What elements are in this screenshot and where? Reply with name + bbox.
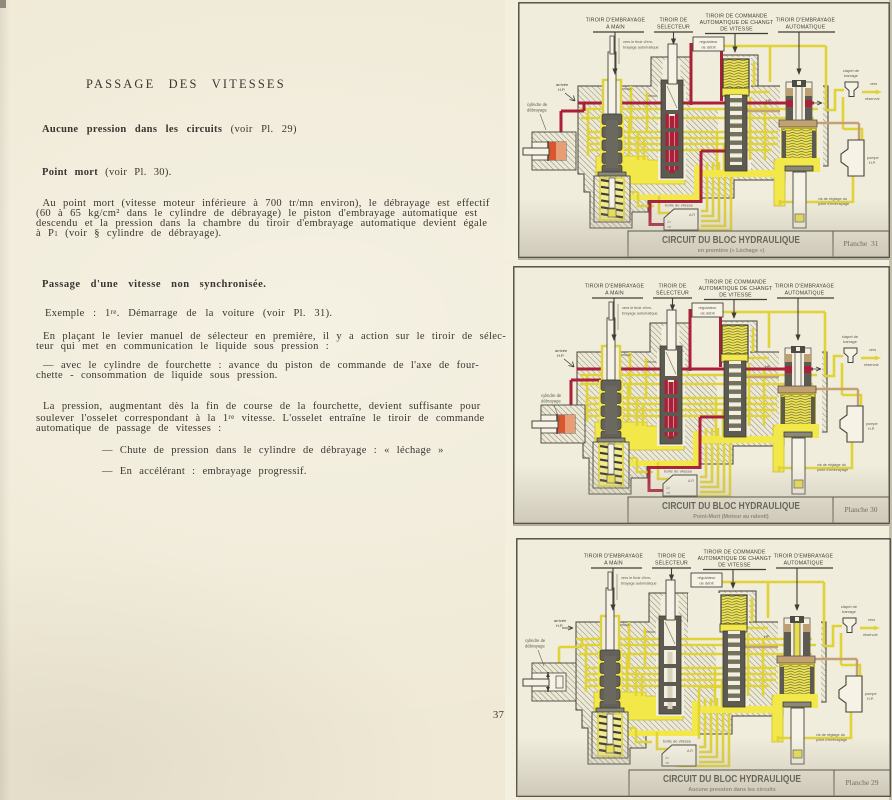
svg-text:H.P.: H.P. bbox=[556, 623, 563, 628]
svg-text:de débit: de débit bbox=[700, 311, 715, 316]
svg-text:AUTOMATIQUE: AUTOMATIQUE bbox=[786, 25, 826, 31]
svg-text:SÉLECTEUR: SÉLECTEUR bbox=[656, 290, 689, 297]
svg-text:H.P.: H.P. bbox=[869, 161, 876, 165]
svg-text:débrayage: débrayage bbox=[525, 644, 545, 649]
svg-text:brayage automatique: brayage automatique bbox=[621, 582, 657, 586]
svg-text:débrayage: débrayage bbox=[527, 108, 547, 113]
svg-text:TIROIR D'EMBRAYAGE: TIROIR D'EMBRAYAGE bbox=[584, 554, 644, 560]
svg-text:cylindre de: cylindre de bbox=[525, 638, 546, 643]
svg-text:vers le tiroir d'em-: vers le tiroir d'em- bbox=[622, 306, 653, 310]
svg-text:vers: vers bbox=[868, 618, 875, 622]
svg-text:H.P.: H.P. bbox=[867, 697, 874, 701]
svg-text:TIROIR D'EMBRAYAGE: TIROIR D'EMBRAYAGE bbox=[776, 18, 836, 24]
svg-text:AUTOMATIQUE: AUTOMATIQUE bbox=[785, 291, 825, 297]
svg-text:barrage: barrage bbox=[842, 609, 857, 614]
svg-text:retour: retour bbox=[646, 630, 656, 634]
svg-text:régulateur: régulateur bbox=[698, 305, 717, 310]
svg-text:de débit: de débit bbox=[701, 45, 716, 50]
svg-text:réservoir: réservoir bbox=[865, 97, 881, 101]
svg-text:DE VITESSE: DE VITESSE bbox=[720, 27, 753, 33]
svg-text:pompe: pompe bbox=[865, 692, 877, 696]
svg-text:HP: HP bbox=[765, 365, 771, 369]
svg-text:réservoir: réservoir bbox=[864, 363, 880, 367]
svg-text:TIROIR DE COMMANDE: TIROIR DE COMMANDE bbox=[705, 14, 767, 20]
svg-text:vers: vers bbox=[870, 82, 877, 86]
svg-text:vers le tiroir d'em-: vers le tiroir d'em- bbox=[623, 40, 654, 44]
svg-text:H.P.: H.P. bbox=[557, 353, 564, 358]
svg-text:barrage: barrage bbox=[844, 73, 859, 78]
svg-text:régulateur: régulateur bbox=[699, 39, 718, 44]
svg-text:SÉLECTEUR: SÉLECTEUR bbox=[655, 560, 688, 567]
svg-text:A MAIN: A MAIN bbox=[604, 561, 623, 567]
svg-text:réservoir: réservoir bbox=[863, 633, 879, 637]
svg-text:TIROIR D'EMBRAYAGE: TIROIR D'EMBRAYAGE bbox=[774, 554, 834, 560]
svg-text:cylindre de: cylindre de bbox=[541, 393, 562, 398]
svg-text:TIROIR DE: TIROIR DE bbox=[657, 554, 685, 560]
svg-text:retour: retour bbox=[622, 87, 632, 91]
svg-text:vis de réglage du: vis de réglage du bbox=[816, 733, 845, 737]
svg-text:DE VITESSE: DE VITESSE bbox=[718, 563, 751, 569]
svg-text:H.P.: H.P. bbox=[868, 427, 875, 431]
svg-text:TIROIR DE: TIROIR DE bbox=[658, 284, 686, 290]
svg-text:SÉLECTEUR: SÉLECTEUR bbox=[657, 24, 690, 31]
svg-text:TIROIR D'EMBRAYAGE: TIROIR D'EMBRAYAGE bbox=[775, 284, 835, 290]
svg-text:régulateur: régulateur bbox=[697, 575, 716, 580]
svg-text:TIROIR DE COMMANDE: TIROIR DE COMMANDE bbox=[704, 280, 766, 286]
svg-text:pompe: pompe bbox=[867, 156, 879, 160]
svg-text:retour: retour bbox=[620, 623, 630, 627]
svg-text:AUTOMATIQUE DE CHANGT: AUTOMATIQUE DE CHANGT bbox=[699, 286, 773, 292]
svg-text:retour: retour bbox=[621, 353, 631, 357]
svg-text:AUTOMATIQUE: AUTOMATIQUE bbox=[784, 561, 824, 567]
svg-text:AUTOMATIQUE DE CHANGT: AUTOMATIQUE DE CHANGT bbox=[698, 556, 772, 562]
svg-text:A MAIN: A MAIN bbox=[606, 25, 625, 31]
svg-text:brayage automatique: brayage automatique bbox=[622, 312, 658, 316]
svg-text:retour: retour bbox=[648, 94, 658, 98]
svg-text:cylindre de: cylindre de bbox=[527, 102, 548, 107]
svg-text:barrage: barrage bbox=[843, 339, 858, 344]
svg-text:retour: retour bbox=[647, 360, 657, 364]
svg-text:TIROIR DE COMMANDE: TIROIR DE COMMANDE bbox=[703, 550, 765, 556]
svg-text:TIROIR DE: TIROIR DE bbox=[659, 18, 687, 24]
svg-text:TIROIR D'EMBRAYAGE: TIROIR D'EMBRAYAGE bbox=[586, 18, 646, 24]
svg-text:H.P.: H.P. bbox=[558, 87, 565, 92]
svg-text:DE VITESSE: DE VITESSE bbox=[719, 293, 752, 299]
svg-text:HP: HP bbox=[764, 635, 770, 639]
svg-text:A MAIN: A MAIN bbox=[605, 291, 624, 297]
svg-text:HP: HP bbox=[766, 99, 772, 103]
svg-text:débrayage: débrayage bbox=[541, 399, 561, 404]
svg-text:AUTOMATIQUE DE CHANGT: AUTOMATIQUE DE CHANGT bbox=[700, 20, 774, 26]
svg-text:brayage automatique: brayage automatique bbox=[623, 46, 659, 50]
svg-text:pompe: pompe bbox=[866, 422, 878, 426]
svg-text:de débit: de débit bbox=[699, 581, 714, 586]
svg-text:vers: vers bbox=[869, 348, 876, 352]
svg-text:vers le tiroir d'em-: vers le tiroir d'em- bbox=[621, 576, 652, 580]
svg-text:TIROIR D'EMBRAYAGE: TIROIR D'EMBRAYAGE bbox=[585, 284, 645, 290]
